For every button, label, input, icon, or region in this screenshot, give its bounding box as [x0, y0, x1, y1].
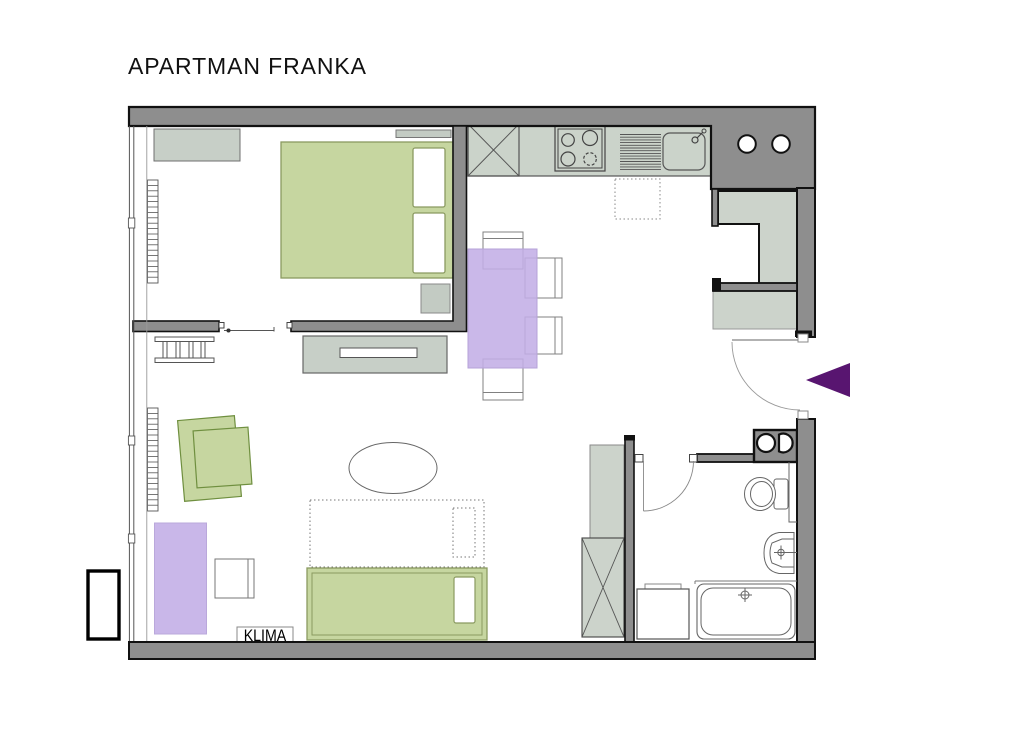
svg-text:APARTMAN FRANKA: APARTMAN FRANKA [128, 53, 367, 79]
